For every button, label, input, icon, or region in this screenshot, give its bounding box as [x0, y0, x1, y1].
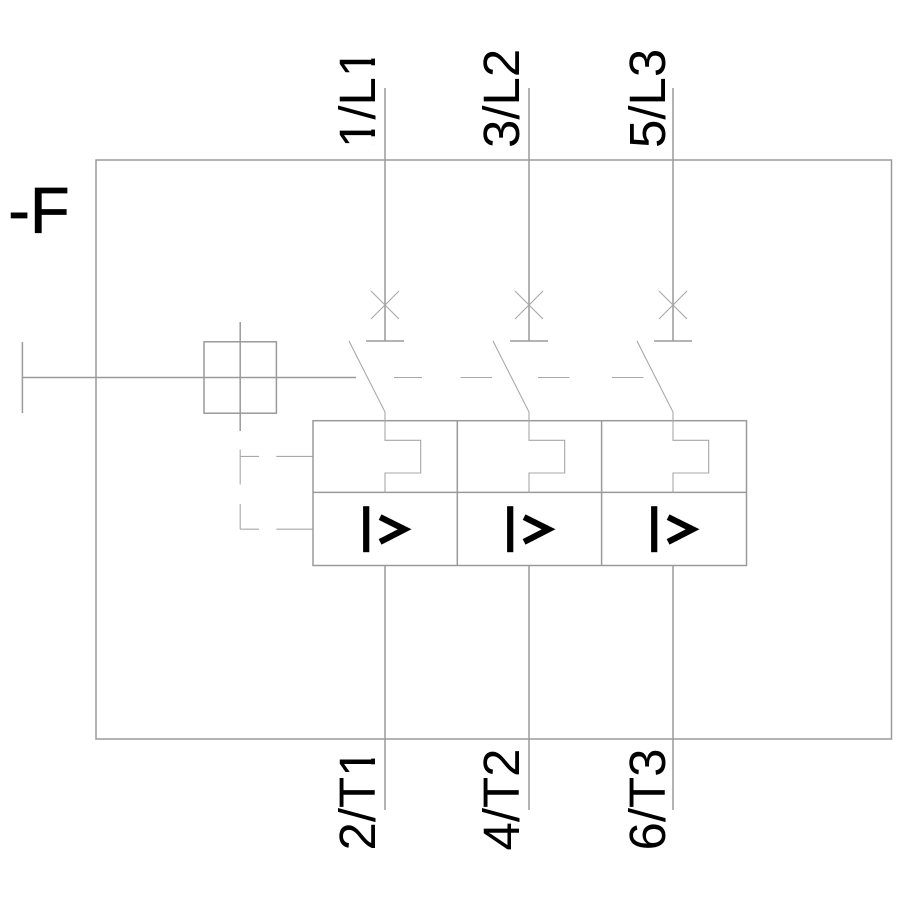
svg-text:2/T1: 2/T1 [329, 748, 386, 850]
svg-text:1/L1: 1/L1 [329, 49, 386, 148]
svg-text:-F: -F [8, 174, 69, 247]
svg-text:4/T2: 4/T2 [473, 748, 530, 850]
svg-text:6/T3: 6/T3 [619, 748, 676, 850]
svg-text:5/L3: 5/L3 [619, 49, 676, 148]
svg-text:3/L2: 3/L2 [473, 49, 530, 148]
